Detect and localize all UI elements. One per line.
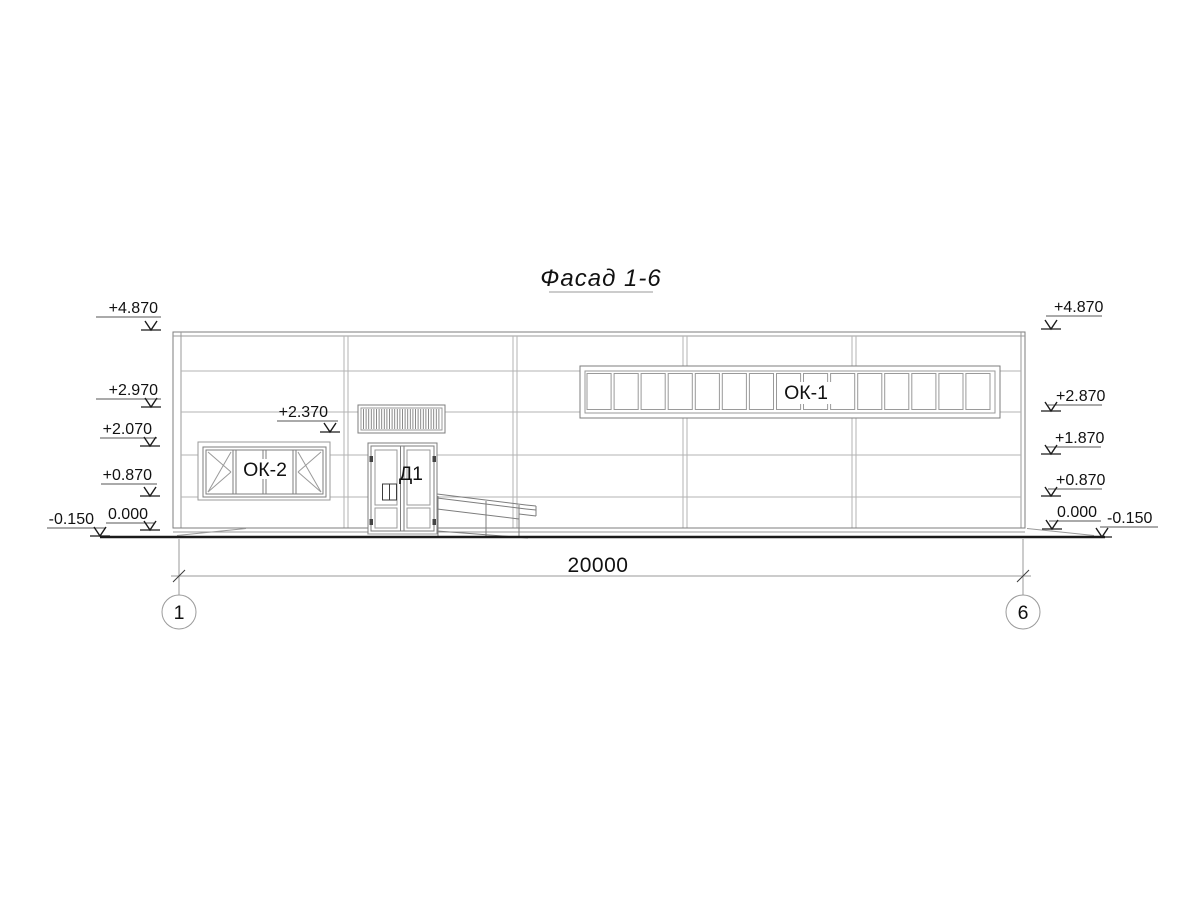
title-text: Фасад 1-6	[540, 265, 661, 292]
elevation-mark-value: 0.000	[1057, 504, 1097, 521]
elevation-mark: 0.000	[106, 506, 160, 530]
elevation-mark: +2.370	[277, 404, 340, 432]
axis-bubbles: 1 6	[162, 595, 1040, 629]
window-ok2-label: ОК-2	[243, 459, 287, 481]
dimension-text: 20000	[568, 554, 629, 577]
elevation-mark: +1.870	[1041, 430, 1104, 454]
ok1-pane	[966, 374, 990, 410]
ok1-pane	[912, 374, 936, 410]
window-ok1-label: ОК-1	[784, 382, 828, 404]
elevation-mark-value: +4.870	[1054, 299, 1103, 316]
elevation-mark: +2.870	[1041, 388, 1105, 411]
elevation-mark-value: +2.070	[103, 421, 152, 438]
elevation-mark: -0.150	[47, 511, 110, 536]
elevation-mark: +4.870	[1041, 299, 1103, 329]
elevation-mark-value: -0.150	[49, 511, 94, 528]
facade-elevation-drawing: ОК-1 ОК-2	[0, 0, 1200, 900]
ok1-pane	[587, 374, 611, 410]
facade-wall	[173, 332, 1094, 536]
elevation-mark-value: +2.970	[109, 382, 158, 399]
ok1-pane	[831, 374, 855, 410]
elevation-mark: +2.070	[100, 421, 160, 446]
ok1-pane	[939, 374, 963, 410]
elevation-mark-value: 0.000	[108, 506, 148, 523]
ok1-pane	[749, 374, 773, 410]
elevation-mark: +0.870	[1041, 472, 1105, 496]
elevation-mark-value: +0.870	[1056, 472, 1105, 489]
ok1-pane	[641, 374, 665, 410]
elevation-mark: +2.970	[96, 382, 161, 407]
elevation-mark: -0.150	[1092, 510, 1158, 537]
elevation-mark-value: +4.870	[109, 300, 158, 317]
elevation-mark-value: +1.870	[1055, 430, 1104, 447]
ok1-pane	[858, 374, 882, 410]
ok1-pane	[695, 374, 719, 410]
ok1-pane	[614, 374, 638, 410]
elevation-mark-value: -0.150	[1107, 510, 1152, 527]
elevation-mark: +0.870	[101, 467, 160, 496]
elevation-mark-value: +0.870	[103, 467, 152, 484]
ok1-pane	[668, 374, 692, 410]
door-d1: Д1	[368, 443, 437, 534]
elevation-mark-value: +2.870	[1056, 388, 1105, 405]
dimension: 20000	[171, 539, 1031, 595]
axis-label-6: 6	[1018, 602, 1029, 624]
window-ok1: ОК-1	[580, 366, 1000, 418]
elevation-mark: +4.870	[96, 300, 161, 330]
axis-label-1: 1	[174, 602, 185, 624]
drawing-title: Фасад 1-6	[540, 265, 661, 292]
door-label: Д1	[399, 463, 423, 485]
louver-grille	[358, 405, 445, 433]
plinth	[173, 528, 1094, 536]
ok1-pane	[885, 374, 909, 410]
elevation-mark-value: +2.370	[279, 404, 328, 421]
elevation-mark: 0.000	[1042, 504, 1101, 529]
ok1-pane	[722, 374, 746, 410]
ramp-railing	[437, 494, 536, 538]
window-ok2: ОК-2	[198, 442, 330, 500]
